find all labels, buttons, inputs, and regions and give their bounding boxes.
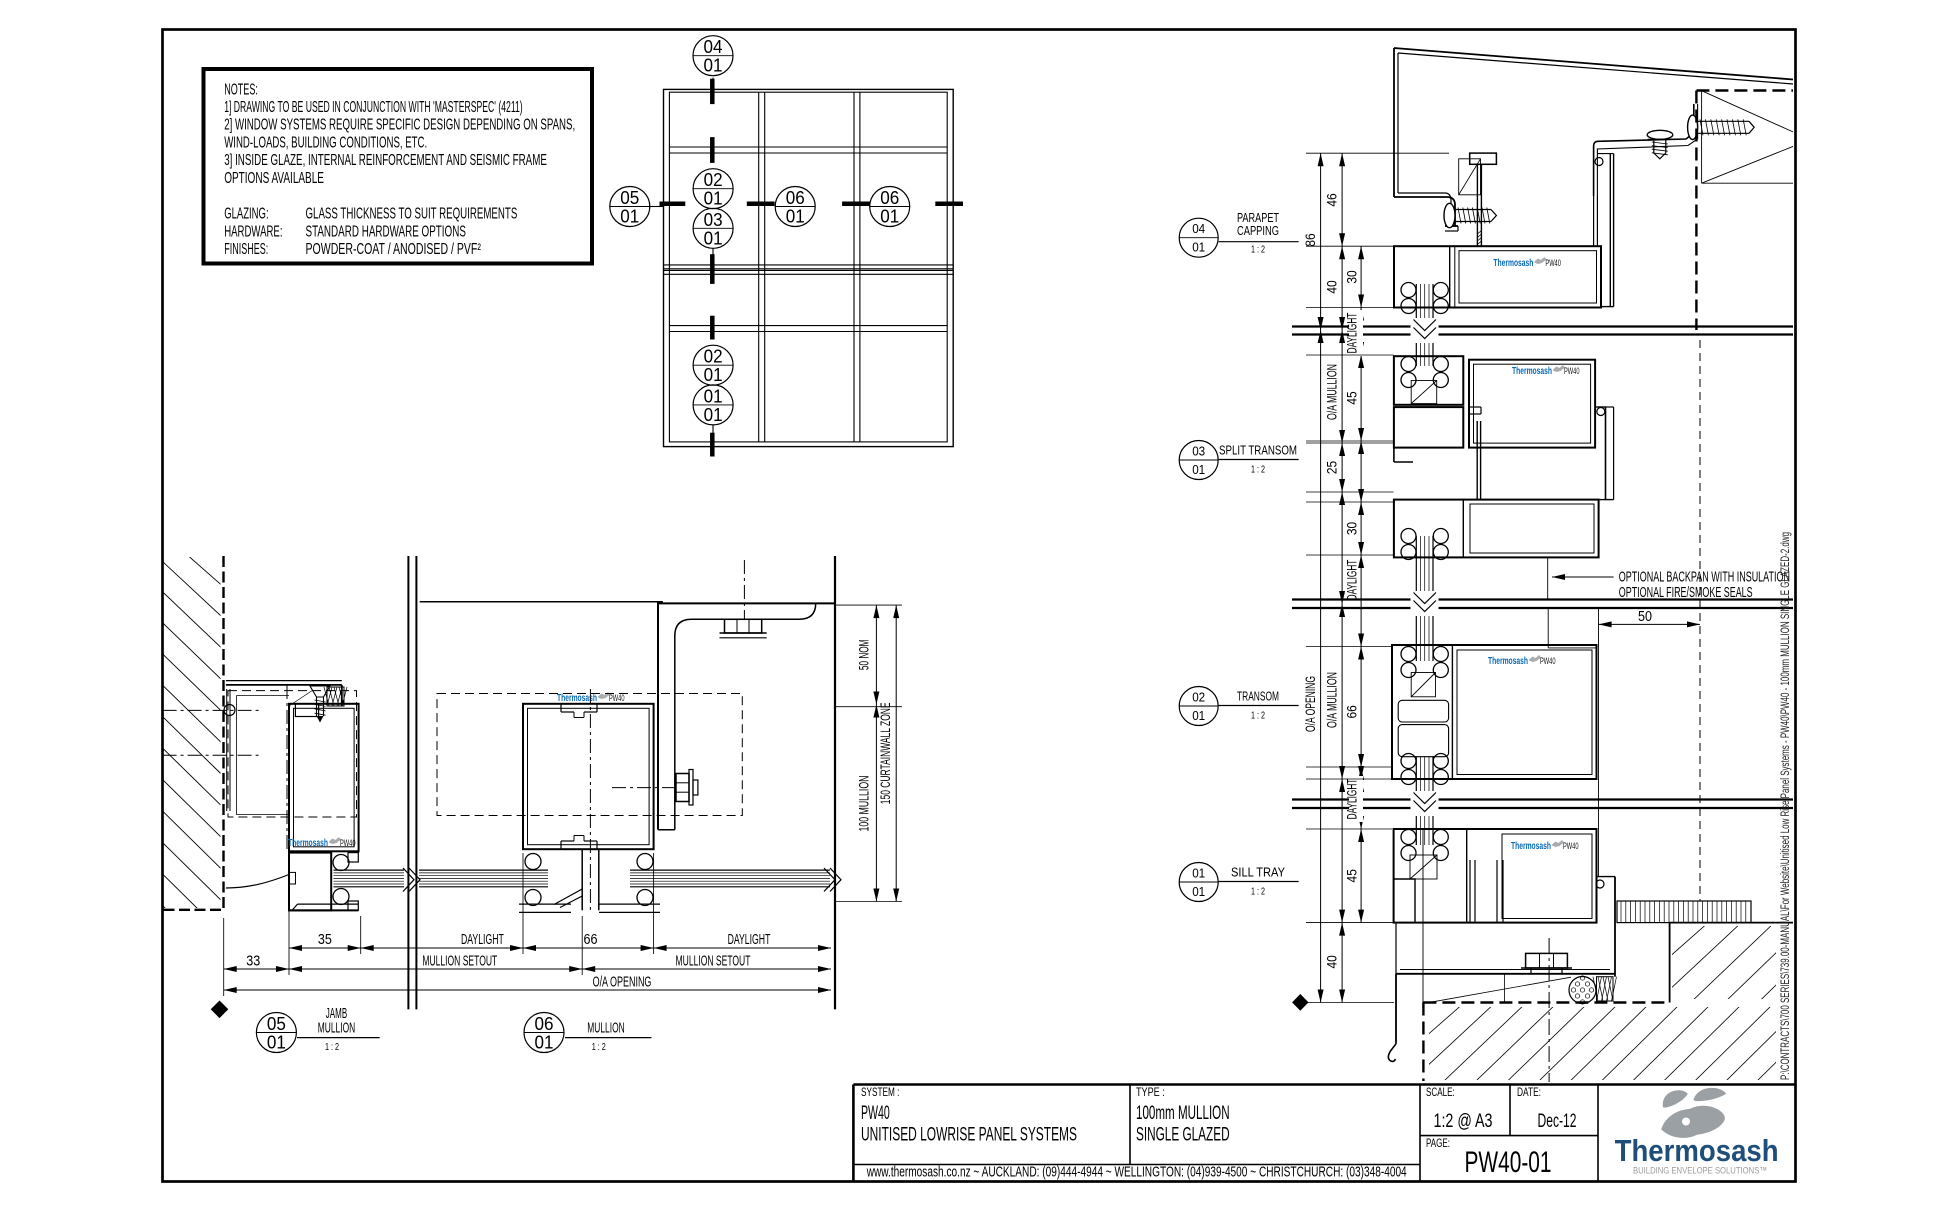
svg-text:DAYLIGHT: DAYLIGHT	[461, 932, 504, 948]
svg-text:01: 01	[704, 55, 723, 76]
svg-text:Thermosash: Thermosash	[1511, 841, 1551, 852]
svg-text:NOTES:: NOTES:	[224, 81, 258, 98]
svg-text:2] WINDOW SYSTEMS REQUIRE SPEC: 2] WINDOW SYSTEMS REQUIRE SPECIFIC DESIG…	[224, 117, 575, 134]
svg-text:1:2 @ A3: 1:2 @ A3	[1434, 1110, 1493, 1132]
svg-text:OPTIONS AVAILABLE: OPTIONS AVAILABLE	[224, 170, 324, 187]
svg-text:MULLION: MULLION	[587, 1021, 624, 1037]
svg-text:DAYLIGHT: DAYLIGHT	[1345, 559, 1360, 600]
svg-text:01: 01	[1192, 462, 1205, 477]
svg-text:01: 01	[704, 364, 723, 385]
svg-text:FINISHES:: FINISHES:	[224, 241, 268, 258]
svg-text:04: 04	[1192, 221, 1205, 236]
svg-text:PW40: PW40	[861, 1102, 890, 1124]
svg-text:Thermosash: Thermosash	[557, 693, 597, 704]
svg-text:O/A MULLION: O/A MULLION	[1324, 672, 1339, 728]
svg-text:50: 50	[1638, 609, 1652, 625]
svg-text:01: 01	[704, 404, 723, 425]
svg-text:1 : 2: 1 : 2	[1251, 711, 1265, 722]
svg-text:OPTIONAL FIRE/SMOKE SEALS: OPTIONAL FIRE/SMOKE SEALS	[1619, 585, 1753, 601]
svg-text:POWDER-COAT / ANODISED / PVF²: POWDER-COAT / ANODISED / PVF²	[306, 241, 481, 258]
svg-text:CAPPING: CAPPING	[1237, 223, 1279, 238]
svg-text:HARDWARE:: HARDWARE:	[224, 223, 282, 240]
svg-text:25: 25	[1324, 461, 1339, 475]
svg-text:STANDARD HARDWARE OPTIONS: STANDARD HARDWARE OPTIONS	[306, 223, 466, 240]
svg-text:01: 01	[1192, 866, 1205, 881]
svg-text:01: 01	[704, 188, 723, 209]
svg-text:PW40: PW40	[1564, 366, 1580, 376]
svg-text:PW40: PW40	[1563, 841, 1579, 851]
svg-text:GLAZING:: GLAZING:	[224, 206, 268, 223]
svg-text:01: 01	[786, 206, 805, 227]
svg-text:SINGLE GLAZED: SINGLE GLAZED	[1136, 1124, 1230, 1146]
svg-text:SYSTEM :: SYSTEM :	[861, 1085, 899, 1099]
svg-text:PW40: PW40	[609, 693, 625, 703]
svg-text:OPTIONAL BACKPAN WITH INSULATI: OPTIONAL BACKPAN WITH INSULATION	[1619, 570, 1790, 586]
svg-text:45: 45	[1345, 391, 1360, 405]
svg-text:Thermosash: Thermosash	[1615, 1133, 1779, 1168]
svg-text:WIND-LOADS, BUILDING CONDITION: WIND-LOADS, BUILDING CONDITIONS, ETC.	[224, 135, 427, 152]
svg-text:MULLION: MULLION	[318, 1021, 355, 1037]
svg-text:35: 35	[318, 932, 332, 948]
svg-text:Thermosash: Thermosash	[1493, 258, 1533, 269]
svg-text:PW40: PW40	[1545, 258, 1561, 268]
svg-text:01: 01	[1192, 240, 1205, 255]
svg-text:SILL TRAY: SILL TRAY	[1231, 865, 1285, 880]
svg-text:PW40-01: PW40-01	[1465, 1146, 1552, 1179]
svg-text:50 NOM: 50 NOM	[857, 640, 872, 671]
svg-text:DAYLIGHT: DAYLIGHT	[728, 932, 771, 948]
svg-text:45: 45	[1345, 869, 1360, 883]
svg-text:40: 40	[1324, 280, 1339, 294]
svg-text:Thermosash: Thermosash	[1488, 656, 1528, 667]
svg-text:30: 30	[1345, 270, 1360, 284]
svg-text:MULLION SETOUT: MULLION SETOUT	[422, 954, 497, 970]
svg-text:1] DRAWING TO BE USED IN CONJU: 1] DRAWING TO BE USED IN CONJUNCTION WIT…	[224, 99, 523, 116]
svg-text:30: 30	[1345, 522, 1360, 536]
svg-text:P:\CONTRACTS\700 SERIES\739.00: P:\CONTRACTS\700 SERIES\739.00-MANUAL\Fo…	[1780, 532, 1792, 1080]
svg-text:01: 01	[535, 1032, 554, 1053]
svg-text:O/A OPENING: O/A OPENING	[1303, 676, 1318, 732]
svg-text:SCALE:: SCALE:	[1426, 1085, 1455, 1099]
svg-text:46: 46	[1324, 193, 1339, 207]
svg-text:MULLION SETOUT: MULLION SETOUT	[676, 954, 751, 970]
svg-text:Thermosash: Thermosash	[1512, 366, 1552, 377]
svg-text:1 : 2: 1 : 2	[1251, 245, 1265, 256]
svg-text:02: 02	[1192, 690, 1205, 705]
svg-text:O/A OPENING: O/A OPENING	[593, 975, 652, 991]
svg-text:66: 66	[1345, 705, 1360, 719]
svg-text:3] INSIDE GLAZE, INTERNAL REIN: 3] INSIDE GLAZE, INTERNAL REINFORCEMENT …	[224, 152, 547, 169]
svg-text:01: 01	[880, 206, 899, 227]
svg-text:1 : 2: 1 : 2	[592, 1042, 606, 1053]
svg-text:DAYLIGHT: DAYLIGHT	[1345, 778, 1360, 819]
svg-text:01: 01	[1192, 708, 1205, 723]
svg-text:UNITISED LOWRISE PANEL SYSTEMS: UNITISED LOWRISE PANEL SYSTEMS	[861, 1124, 1077, 1146]
svg-text:66: 66	[584, 932, 598, 948]
svg-text:PW40: PW40	[340, 838, 356, 848]
svg-text:01: 01	[267, 1032, 286, 1053]
svg-text:40: 40	[1324, 955, 1339, 969]
svg-text:BUILDING ENVELOPE SOLUTIONS™: BUILDING ENVELOPE SOLUTIONS™	[1633, 1166, 1767, 1177]
svg-text:Thermosash: Thermosash	[288, 838, 328, 849]
svg-text:GLASS THICKNESS TO SUIT REQUIR: GLASS THICKNESS TO SUIT REQUIREMENTS	[306, 206, 518, 223]
svg-text:1 : 2: 1 : 2	[1251, 465, 1265, 476]
svg-text:www.thermosash.co.nz ~ AUCKLAN: www.thermosash.co.nz ~ AUCKLAND: (09)444…	[866, 1165, 1407, 1181]
svg-text:86: 86	[1303, 233, 1318, 247]
svg-text:1 : 2: 1 : 2	[325, 1042, 339, 1053]
svg-text:O/A MULLION: O/A MULLION	[1324, 364, 1339, 420]
svg-text:PW40: PW40	[1540, 656, 1556, 666]
svg-text:1 : 2: 1 : 2	[1251, 887, 1265, 898]
svg-text:150 CURTAINWALL ZONE: 150 CURTAINWALL ZONE	[878, 702, 893, 804]
svg-text:DATE:: DATE:	[1517, 1085, 1541, 1099]
svg-text:TRANSOM: TRANSOM	[1237, 689, 1279, 704]
svg-text:100mm MULLION: 100mm MULLION	[1136, 1102, 1230, 1124]
svg-text:DAYLIGHT: DAYLIGHT	[1345, 312, 1360, 353]
svg-text:SPLIT TRANSOM: SPLIT TRANSOM	[1219, 443, 1297, 458]
svg-text:33: 33	[246, 954, 260, 970]
svg-text:01: 01	[1192, 884, 1205, 899]
svg-text:PAGE:: PAGE:	[1426, 1136, 1450, 1150]
svg-text:Dec-12: Dec-12	[1538, 1111, 1577, 1132]
svg-text:TYPE :: TYPE :	[1136, 1085, 1165, 1099]
svg-text:01: 01	[704, 227, 723, 248]
svg-text:JAMB: JAMB	[326, 1006, 347, 1022]
svg-text:100 MULLION: 100 MULLION	[857, 776, 872, 832]
svg-text:01: 01	[620, 206, 639, 227]
svg-text:03: 03	[1192, 444, 1205, 459]
